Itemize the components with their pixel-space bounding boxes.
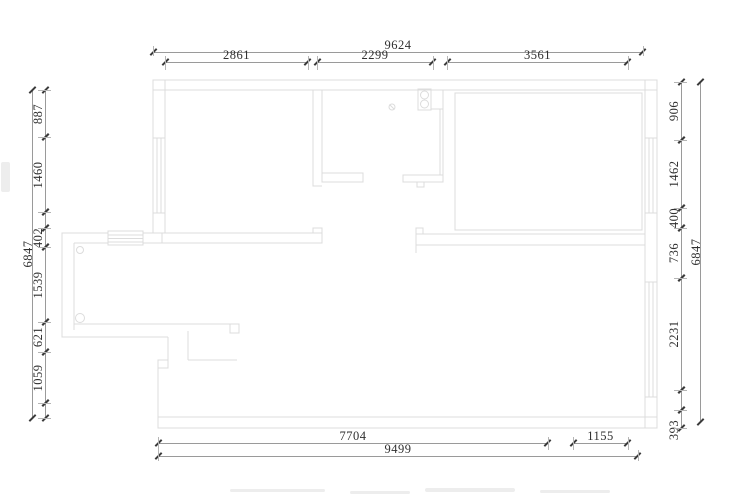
dim-left-2: 1460 [45, 137, 46, 212]
extension-line [38, 403, 51, 404]
extension-line [674, 428, 687, 429]
dim-label: 7704 [340, 430, 367, 443]
extension-line [573, 437, 574, 450]
dim-top-3: 3561 [447, 62, 628, 63]
dim-bottom-1: 7704 [158, 443, 548, 444]
hall-wall-right [416, 234, 645, 245]
hall-wall-left [162, 233, 322, 243]
extension-line [628, 56, 629, 70]
wall-notch [416, 228, 423, 234]
window-symbols [153, 138, 657, 397]
extension-line [38, 228, 51, 229]
balcony-outer-wall [62, 233, 168, 337]
step-block [158, 360, 168, 368]
dim-label: 1155 [587, 430, 614, 443]
extension-line [153, 46, 154, 56]
extension-line [38, 137, 51, 138]
floor-plan-canvas [0, 0, 740, 500]
dim-label: 2231 [668, 321, 681, 348]
dim-label: 887 [32, 103, 45, 123]
watermark-fragment [540, 490, 610, 493]
door-jamb [230, 324, 239, 333]
extension-line [38, 352, 51, 353]
extension-line [674, 390, 687, 391]
dim-label: 906 [668, 101, 681, 121]
burner-circle-icon [421, 91, 429, 99]
kitchen [322, 89, 443, 187]
dim-bottom-total: 9499 [158, 456, 638, 457]
window-right-lower-icon [645, 282, 657, 397]
extension-line [158, 437, 159, 461]
dim-label: 9499 [385, 443, 412, 456]
kitchen-wall-se [403, 175, 443, 182]
watermark-fragment [350, 491, 410, 494]
wall-notch [313, 228, 322, 233]
extension-line [38, 418, 51, 419]
dim-right-6: 393 [681, 410, 682, 428]
watermark-fragment [230, 489, 325, 492]
column-circle-icon [76, 314, 85, 323]
kitchen-wall-sw [322, 173, 363, 182]
dim-label: 621 [32, 327, 45, 347]
dim-left-gap2 [45, 403, 46, 418]
outer-walls [153, 80, 657, 428]
dim-bottom-2: 1155 [573, 443, 628, 444]
dim-left-5: 621 [45, 322, 46, 352]
wall-bottom [158, 417, 657, 428]
interior-walls [162, 90, 645, 253]
extension-line [674, 140, 687, 141]
extension-line [628, 437, 629, 450]
extension-line [38, 322, 51, 323]
dim-label: 400 [668, 208, 681, 228]
dim-top-2: 2299 [317, 62, 433, 63]
window-left-icon [153, 138, 165, 213]
extension-line [433, 56, 434, 70]
dim-label: 1462 [668, 161, 681, 188]
extension-line [447, 56, 448, 70]
extension-line [674, 208, 687, 209]
dim-right-total: 6847 [700, 82, 701, 422]
extension-line [165, 56, 166, 70]
dim-label: 402 [32, 227, 45, 247]
extension-line [638, 450, 639, 461]
dim-right-2: 1462 [681, 140, 682, 208]
floor-plan-screenshot: 9624 2861 2299 3561 7704 1155 9499 6847 … [0, 0, 740, 500]
extension-line [674, 82, 687, 83]
dim-top-1: 2861 [165, 62, 308, 63]
watermark-fragment [1, 162, 10, 192]
extension-line [548, 437, 549, 450]
extension-line [317, 56, 318, 70]
dim-left-4: 1539 [45, 247, 46, 322]
dim-left-6: 1059 [45, 352, 46, 403]
dim-label: 6847 [690, 239, 703, 266]
dim-label: 2861 [223, 49, 250, 62]
extension-line [643, 46, 644, 56]
extension-line [674, 278, 687, 279]
balcony [62, 231, 239, 337]
room1-right-wall [313, 90, 322, 186]
entry-steps [158, 331, 237, 417]
extension-line [308, 56, 309, 70]
extension-line [674, 410, 687, 411]
dim-label: 3561 [524, 49, 551, 62]
dim-left-1: 887 [45, 90, 46, 137]
stove-counter-icon [418, 89, 431, 110]
room-top-right [455, 93, 642, 230]
floor-drain-icon [389, 104, 395, 110]
watermark-fragment [425, 488, 515, 492]
extension-line [674, 228, 687, 229]
dim-label: 736 [668, 243, 681, 263]
burner-circle-icon [421, 100, 429, 108]
dim-right-1: 906 [681, 82, 682, 140]
dim-label: 1539 [32, 271, 45, 298]
wall-top [153, 80, 657, 90]
dim-label: 1059 [32, 364, 45, 391]
dim-right-4: 736 [681, 228, 682, 278]
extension-line [38, 212, 51, 213]
window-right-upper-icon [645, 138, 657, 213]
column-circle-icon [77, 247, 84, 254]
extension-line [38, 247, 51, 248]
dim-label: 2299 [362, 49, 389, 62]
dim-right-5: 2231 [681, 278, 682, 390]
dim-label: 1460 [32, 161, 45, 188]
dim-label: 393 [668, 420, 681, 440]
dim-label: 9624 [385, 39, 412, 52]
extension-line [38, 90, 51, 91]
wall-notch [417, 182, 424, 187]
room-outline [455, 93, 642, 230]
